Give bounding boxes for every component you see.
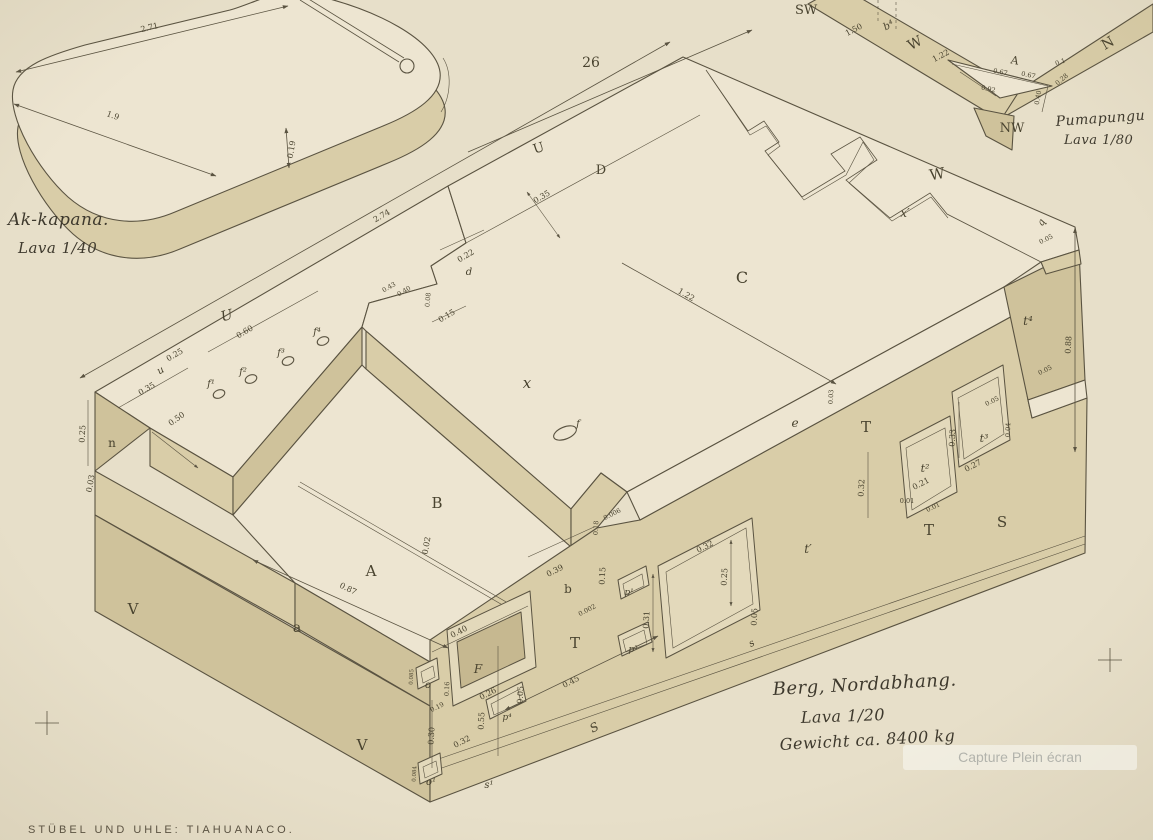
label-f-niche: F bbox=[473, 662, 483, 676]
dim-032r: 0.32 bbox=[857, 479, 867, 497]
label-f3: f³ bbox=[276, 348, 285, 359]
dim-005s: 0.05 bbox=[750, 608, 760, 626]
frag-label-nw: NW bbox=[1000, 121, 1025, 136]
label-c-top: C bbox=[736, 268, 748, 287]
dim-033: 0.33 bbox=[948, 429, 958, 447]
pumapungu-fragment-figure: SW b⁴ W 1.22 1.50 A N NW 0.67 0.67 0.92 … bbox=[795, 0, 1153, 150]
label-n-end: n bbox=[108, 436, 116, 450]
label-t2: t² bbox=[921, 462, 930, 475]
dim-030: 0.30 bbox=[427, 727, 437, 745]
frag-w-band bbox=[808, 0, 1022, 120]
dim-004: 0.04 bbox=[1004, 422, 1013, 437]
frag-scale: Lava 1/80 bbox=[1063, 133, 1133, 148]
frag-n-band bbox=[1002, 4, 1153, 118]
dim-088: 0.88 bbox=[1064, 336, 1074, 354]
label-f4: f⁴ bbox=[312, 327, 321, 338]
frag-label-a: A bbox=[1009, 53, 1021, 68]
label-t4: t⁴ bbox=[1023, 314, 1033, 328]
label-p4: p⁴ bbox=[502, 713, 512, 723]
frag-title: Pumapungu bbox=[1054, 108, 1145, 130]
label-v-upper: V bbox=[127, 600, 140, 618]
dim-025t: 0.25 bbox=[720, 568, 730, 586]
label-d-top: D bbox=[596, 163, 606, 178]
slab-title: Ak-kapana. bbox=[6, 210, 109, 230]
dim-031: 0.31 bbox=[642, 611, 652, 629]
label-f1: f¹ bbox=[206, 379, 215, 390]
label-o1-hole: o¹ bbox=[426, 777, 436, 788]
dim-055: 0.55 bbox=[477, 712, 487, 730]
dim-016: 0.16 bbox=[443, 681, 452, 696]
label-p3: p³ bbox=[628, 645, 638, 655]
label-f2: f² bbox=[238, 367, 247, 378]
label-t-prime: t′ bbox=[804, 542, 812, 556]
dim-018: 0.18 bbox=[592, 520, 601, 535]
dim-005f: 0.05 bbox=[516, 686, 526, 704]
label-a-small: a bbox=[293, 620, 301, 636]
label-e-strip: e bbox=[791, 416, 798, 430]
block-caption-line2: Lava 1/20 bbox=[799, 705, 885, 727]
label-w-top: W bbox=[928, 164, 947, 185]
capture-fullscreen-toast[interactable]: Capture Plein écran bbox=[903, 745, 1137, 770]
slab-top-face bbox=[12, 0, 440, 221]
plate-footer: STÜBEL UND UHLE: TIAHUANACO. bbox=[28, 824, 295, 836]
plate-drawing: 2.71 1.9 0.19 Ak-kapana. Lava 1/40 SW b⁴… bbox=[0, 0, 1153, 840]
rod-knob bbox=[400, 59, 414, 73]
dim-025n: 0.25 bbox=[78, 425, 88, 443]
label-o-hole: o bbox=[425, 680, 431, 691]
label-t-mid: T bbox=[861, 418, 871, 436]
dim-0085: 0.085 bbox=[409, 668, 416, 685]
label-x-prime: x′ bbox=[900, 206, 910, 220]
dim-015b: 0.15 bbox=[598, 567, 608, 585]
label-t-left: T bbox=[570, 634, 580, 652]
label-d-small: d bbox=[466, 267, 472, 278]
label-p1: p¹ bbox=[624, 588, 633, 598]
frag-label-sw: SW bbox=[795, 3, 818, 18]
dim-001a: 0.01 bbox=[900, 497, 914, 505]
block-caption-line1: Berg, Nordabhang. bbox=[771, 669, 957, 700]
label-plate-number: 26 bbox=[582, 55, 600, 71]
label-t3: t³ bbox=[980, 432, 989, 445]
registration-cross-right bbox=[1098, 648, 1122, 672]
label-t-low: T bbox=[924, 521, 934, 539]
label-x-top: x bbox=[523, 374, 532, 392]
dim-003e: 0.03 bbox=[827, 389, 836, 404]
label-s1-small: s¹ bbox=[484, 780, 493, 791]
label-a-mid: A bbox=[365, 562, 377, 580]
label-s-right: S bbox=[997, 513, 1007, 531]
plate-page: 2.71 1.9 0.19 Ak-kapana. Lava 1/40 SW b⁴… bbox=[0, 0, 1153, 840]
dim-0084: 0.084 bbox=[412, 765, 419, 782]
frag-dim-40: 0.40 bbox=[1033, 90, 1043, 106]
label-v-lower: V bbox=[356, 736, 369, 754]
slab-scale: Lava 1/40 bbox=[17, 239, 97, 257]
label-b-mid: B bbox=[431, 494, 442, 512]
registration-cross-left bbox=[35, 711, 59, 735]
dim-008: 0.08 bbox=[423, 292, 432, 307]
label-b-small: b bbox=[564, 582, 572, 596]
